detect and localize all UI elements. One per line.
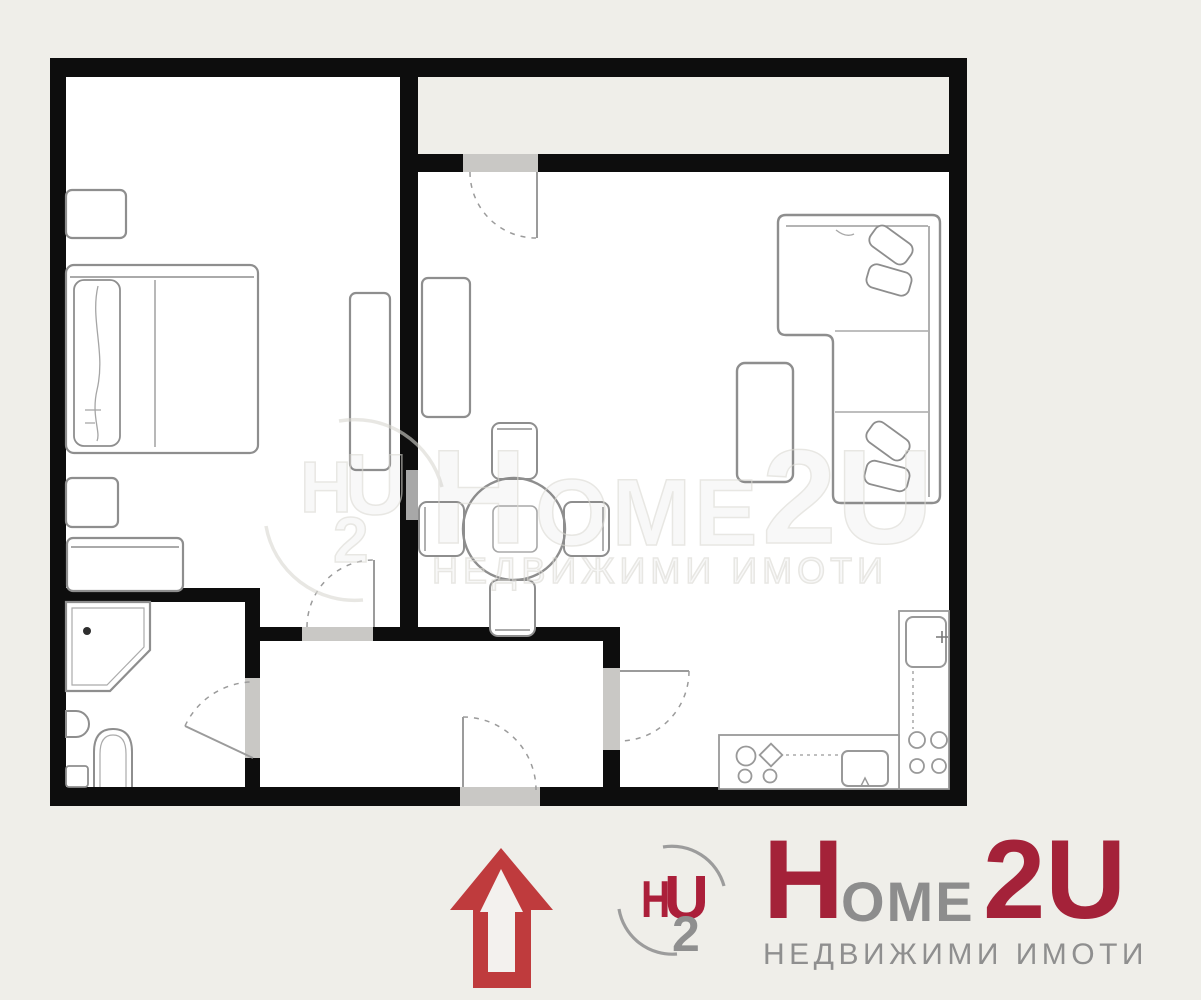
wall-outer-top [50,58,967,77]
entrance-arrow-icon [440,838,565,998]
divider-niche [406,470,418,520]
side-table-icon [737,363,793,482]
chair-icon [492,423,537,479]
wash-basin-icon [66,711,89,737]
bed-icon [66,265,258,453]
pillow-icon [74,280,120,446]
entrance-door-opening [460,787,540,806]
hall-door-opening [603,668,620,750]
wall-hall-top [245,627,620,641]
storage-box-icon [66,478,118,527]
bedroom-door-opening [302,627,373,641]
kitchen-sink-icon [842,751,888,786]
logo-letter-2: 2 [672,909,700,959]
cabinet-icon [422,278,470,417]
kitchen-sink-icon [906,617,948,667]
chair-icon [419,502,464,556]
chair-icon [490,580,535,636]
wall-outer-left [50,58,66,806]
brand-tagline: НЕДВИЖИМИ ИМОТИ [763,940,1148,970]
dresser-icon [67,538,183,591]
wardrobe-icon [350,293,390,470]
nightstand-icon [66,190,126,238]
balcony-door-opening [463,154,538,172]
wall-bedroom-living-divider [400,58,418,641]
bathroom-door-opening [245,678,260,758]
floor-plan-listing-image: H U 2 H OME 2U НЕДВИЖИМИ ИМОТИ H U 2 H O… [0,0,1201,1000]
wordmark-ome: OME [841,874,975,930]
wall-outer-right [949,58,967,806]
wordmark-h: H [763,824,844,936]
balcony-strip [418,77,949,154]
wordmark-2u: 2U [983,824,1126,936]
chair-icon [564,502,609,556]
hu2-logo: H U 2 [615,835,745,965]
